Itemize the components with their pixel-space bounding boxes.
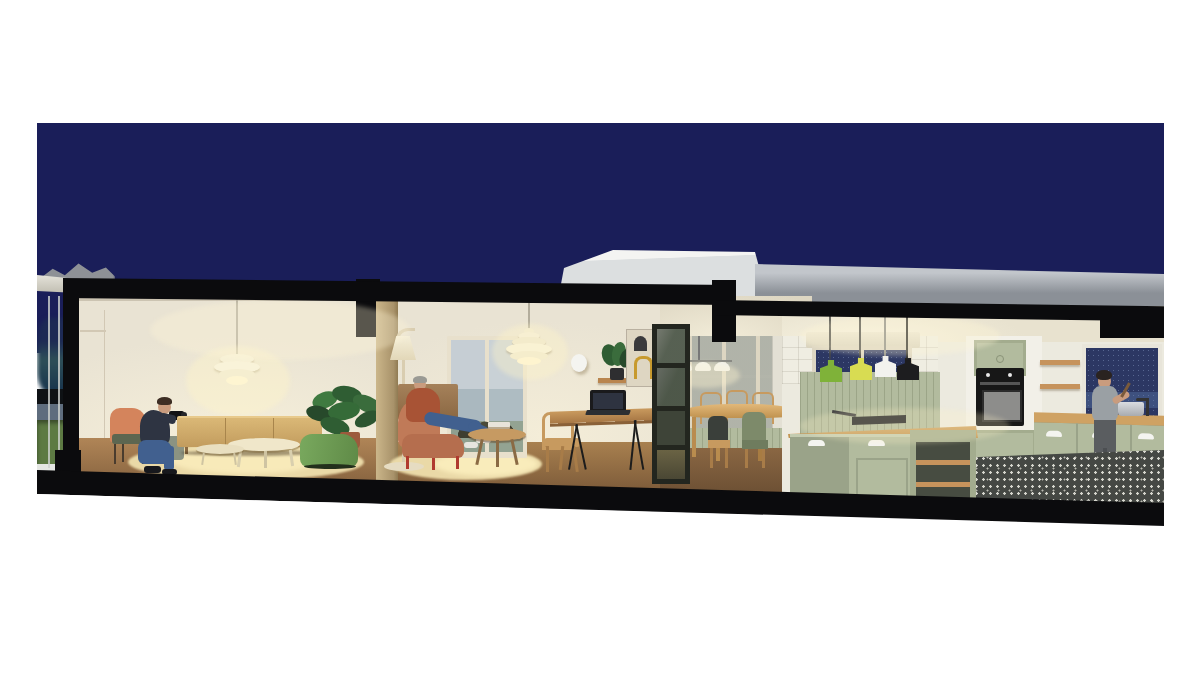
section-render xyxy=(0,0,1200,675)
pendant-rod xyxy=(236,296,238,358)
open-shelf xyxy=(1040,384,1080,389)
left-wall-rail xyxy=(80,330,106,332)
laptop xyxy=(586,390,630,416)
arch-poster xyxy=(626,329,655,387)
dining-chair-green xyxy=(742,412,770,468)
round-coffee-table xyxy=(468,422,530,466)
book xyxy=(488,422,510,427)
shelf-plant-pot xyxy=(610,368,624,380)
tshirt xyxy=(1092,386,1118,422)
oven-glass xyxy=(982,390,1022,422)
open-shelf xyxy=(1040,360,1080,365)
island-shelf xyxy=(916,460,970,465)
glazing-mullion xyxy=(58,296,60,468)
glazing-mullion xyxy=(48,296,50,468)
pan-handle xyxy=(832,410,856,417)
glazed-partition xyxy=(652,324,690,484)
shell-handle xyxy=(1138,433,1154,439)
shin xyxy=(164,446,174,470)
oven-handle xyxy=(980,382,1020,385)
pendant-cord xyxy=(698,336,700,362)
wall-lamp xyxy=(571,354,587,372)
hair xyxy=(413,376,427,383)
nesting-coffee-tables xyxy=(196,438,306,468)
dining-chair-dark xyxy=(708,416,732,468)
faucet-spout xyxy=(1136,398,1148,401)
cooktop xyxy=(852,415,906,425)
hair xyxy=(1096,370,1112,380)
living-room xyxy=(78,296,398,488)
shell-handle xyxy=(868,440,885,446)
shoe xyxy=(144,466,161,473)
artichoke-pendant xyxy=(504,328,554,366)
page-margin-top xyxy=(0,0,1200,123)
ph-pendant-lamp xyxy=(214,354,260,386)
shell-handle xyxy=(1046,431,1062,437)
lounge-study xyxy=(398,294,660,490)
built-in-oven xyxy=(976,368,1024,426)
hair xyxy=(157,397,172,405)
green-pouf xyxy=(300,434,360,472)
cut-corner-right xyxy=(1100,311,1164,337)
shell-handle xyxy=(808,440,825,446)
island-shelf xyxy=(916,482,970,487)
